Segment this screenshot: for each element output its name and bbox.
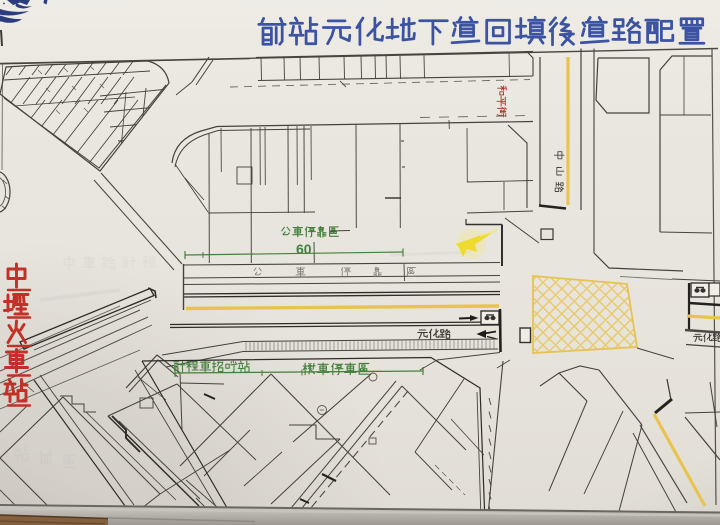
svg-text:60: 60 [296, 241, 312, 257]
